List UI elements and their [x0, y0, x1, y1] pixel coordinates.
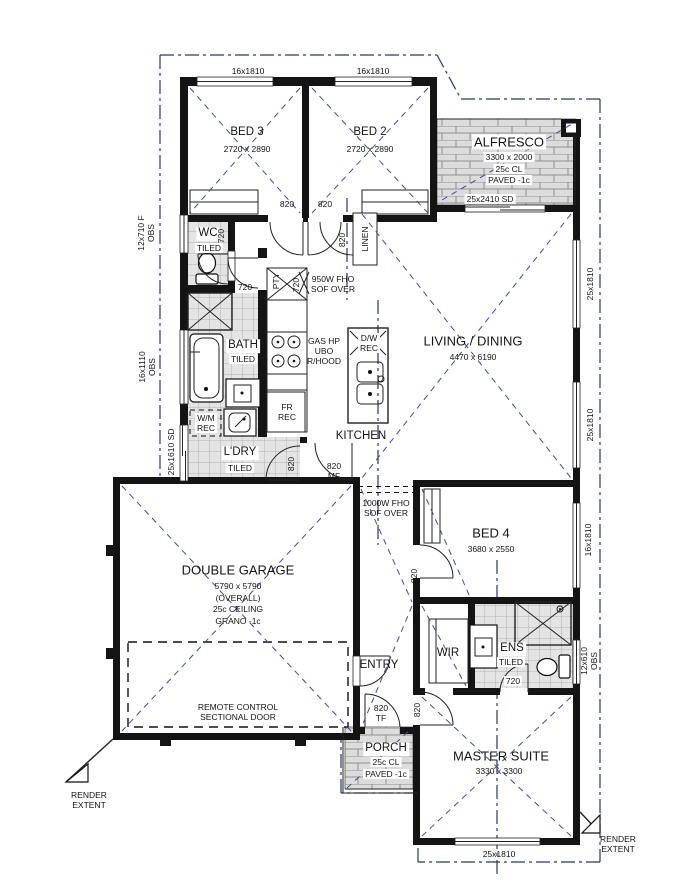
- soffit-1000-label: 1000W FHO SOF OVER: [362, 498, 409, 518]
- window-left2-label: 16x1110 OBS: [137, 351, 157, 382]
- pillar-core: [566, 124, 576, 133]
- pantry-door-label: 720: [291, 278, 301, 292]
- ens-name: ENS: [498, 642, 526, 656]
- window-top-right-label: 16x1810: [357, 66, 390, 76]
- window-left1-label: 12x710 F OBS: [136, 215, 156, 250]
- window-right1-label: 25x1810: [585, 268, 595, 301]
- bed3-door-label: 820: [280, 199, 294, 209]
- bath-finish: TILED: [229, 354, 257, 364]
- window-right2-label: 25x1810: [585, 409, 595, 442]
- front-door-label: 820 TF: [374, 703, 388, 723]
- garage-note1: (OVERALL): [216, 593, 261, 603]
- bath-door-label: 720: [238, 282, 252, 292]
- bed2-name: BED 2: [353, 126, 386, 140]
- wc-finish: TILED: [195, 243, 223, 253]
- garage-dims: 5790 x 5790: [215, 581, 262, 591]
- bed3-dims: 2720 x 2890: [224, 144, 271, 154]
- wc-toilet: [196, 253, 218, 284]
- porch-floor: PAVED -1c: [363, 769, 409, 779]
- ldry-name: L'DRY: [222, 446, 259, 460]
- porch-ceiling: 25c CL: [371, 757, 402, 767]
- ens-finish: TILED: [497, 657, 525, 667]
- hall-door-label: 820: [337, 233, 347, 247]
- soffit-1000: [358, 487, 413, 493]
- window-bottom-label: 25x1810: [483, 849, 516, 859]
- alfresco-ceiling: 25c CL: [494, 164, 525, 174]
- render-extent-right-label: RENDER EXTENT: [600, 834, 636, 854]
- master-door-label: 820: [412, 703, 422, 717]
- bed4-door-label: 820: [409, 569, 419, 583]
- garage-note3: GRANO -1c: [215, 616, 260, 626]
- alfresco-sd-label: 25x2410 SD: [465, 194, 516, 204]
- mf-door-label: 820 MF: [327, 461, 341, 481]
- wc-door-label: 720: [216, 229, 226, 243]
- gas-hotplate-label: GAS HP UBO R/HOOD: [307, 336, 341, 366]
- laundry-trough: [224, 409, 256, 436]
- living-dims: 4470 x 6190: [450, 352, 497, 362]
- entry-name: ENTRY: [360, 659, 399, 673]
- kitchen-name: KITCHEN: [336, 430, 386, 444]
- living-name: LIVING / DINING: [424, 333, 523, 348]
- bed2-door-label: 820: [318, 199, 332, 209]
- alfresco-dims: 3300 x 2000: [484, 152, 535, 162]
- window-left3-label: 25x1610 SD: [166, 429, 176, 476]
- fridge-recess-label: FR REC: [278, 402, 296, 422]
- garage-note2: 25c CEILING: [213, 604, 263, 614]
- bath-name: BATH: [226, 339, 260, 353]
- ldry-door-label: 820: [286, 457, 296, 471]
- pantry-label: PTY: [271, 273, 281, 290]
- floor-plan: BED 3 2720 x 2890 BED 2 2720 x 2890 ALFR…: [0, 0, 694, 883]
- bathtub: [190, 334, 223, 402]
- render-extent-left-label: RENDER EXTENT: [71, 790, 107, 810]
- porch-name: PORCH: [363, 742, 409, 756]
- alfresco-name: ALFRESCO: [472, 134, 546, 149]
- window-right3-label: 16x1810: [583, 524, 593, 557]
- wm-recess-label: W/M REC: [195, 413, 217, 433]
- soffit-950-label: 950W FHO SOF OVER: [311, 274, 355, 294]
- dishwasher-recess-label: D/W REC: [358, 333, 380, 353]
- ldry-finish: TILED: [226, 463, 254, 473]
- wir-name: WIR: [437, 647, 459, 661]
- bed3-name: BED 3: [230, 126, 263, 140]
- window-right4-label: 12x610 OBS: [579, 647, 599, 675]
- ldry-tiles: [188, 437, 300, 483]
- master-dims: 3330 x 3300: [476, 766, 523, 776]
- bath-vanity: [226, 379, 260, 407]
- bed4-dims: 3680 x 2550: [468, 544, 515, 554]
- master-name: MASTER SUITE: [453, 748, 549, 763]
- linen-label: LINEN: [360, 226, 370, 251]
- bed2-dims: 2720 x 2890: [347, 144, 394, 154]
- ens-vanity: [470, 625, 497, 668]
- garage-name: DOUBLE GARAGE: [182, 562, 295, 577]
- ens-door-label: 720: [504, 676, 522, 686]
- bed4-name: BED 4: [472, 525, 510, 540]
- window-top-left-label: 16x1810: [232, 66, 265, 76]
- alfresco-floor: PAVED -1c: [486, 175, 532, 185]
- sectional-door-label: REMOTE CONTROL SECTIONAL DOOR: [198, 702, 278, 722]
